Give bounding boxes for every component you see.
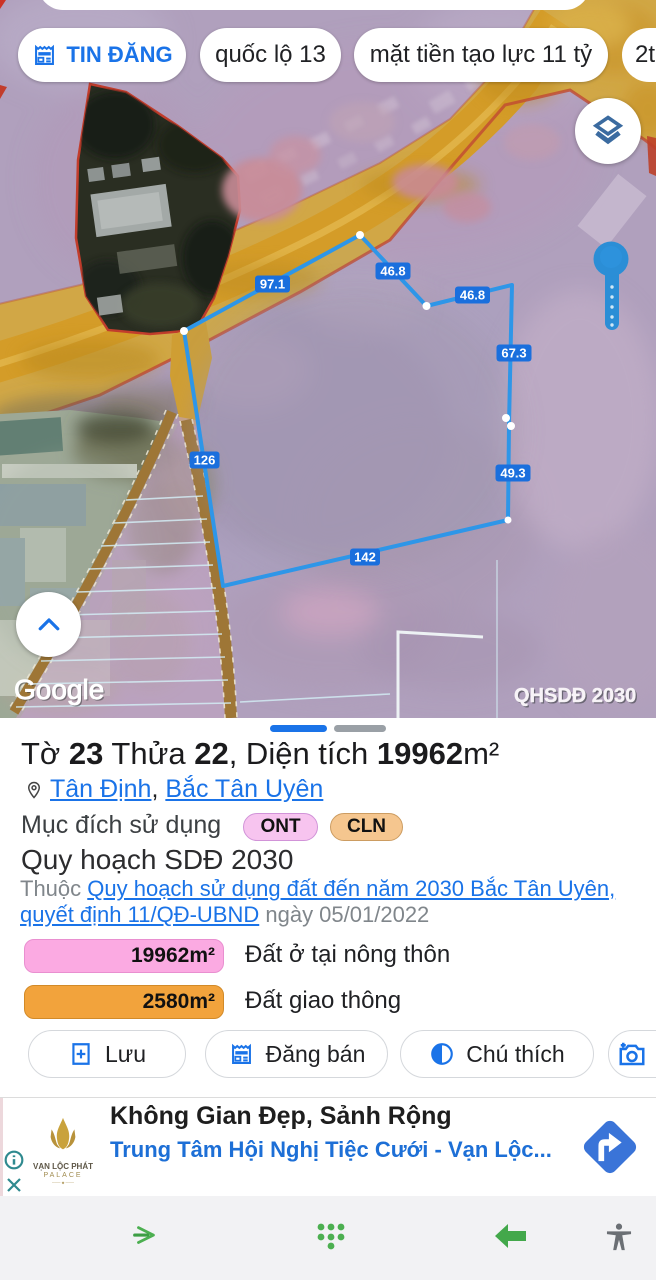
svg-text:97.1: 97.1: [260, 277, 285, 292]
svg-text:QHSDĐ 2030: QHSDĐ 2030: [514, 685, 636, 707]
svg-text:46.8: 46.8: [380, 264, 405, 279]
svg-text:126: 126: [194, 453, 216, 468]
svg-text:142: 142: [354, 550, 376, 565]
svg-text:Google: Google: [14, 674, 104, 705]
svg-text:67.3: 67.3: [501, 346, 526, 361]
svg-text:49.3: 49.3: [500, 466, 525, 481]
svg-text:46.8: 46.8: [460, 288, 485, 303]
